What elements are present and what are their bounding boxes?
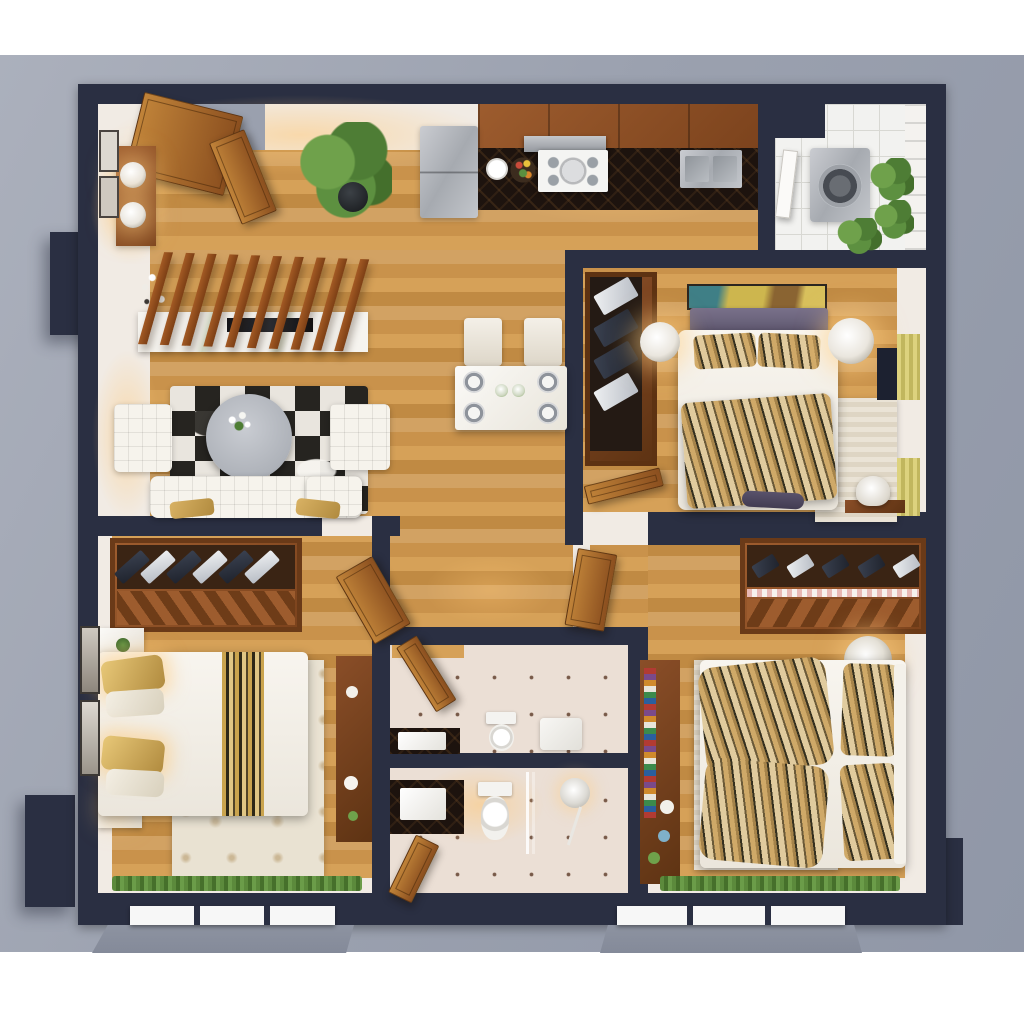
left-wall-frame [80,626,100,694]
shelf-item [648,852,660,864]
refrigerator [420,126,478,218]
left-bedroom-window-plants [112,876,362,891]
wall-master-bottom-left-stub [565,512,583,545]
dining-chair [524,318,562,366]
master-pillow-left [693,332,757,369]
laundry-plant [836,218,882,254]
sink-basin [713,156,737,182]
master-bedside-lamp-right [828,318,874,364]
entry-lamp-2 [120,202,146,228]
wardrobe-hanger-rail [117,545,295,589]
centerpiece [495,384,508,397]
entry-console-table [116,146,156,246]
washing-machine-door [818,164,862,208]
master-headboard [690,308,828,332]
place-setting [537,402,559,424]
centerpiece [512,384,525,397]
master-wall-art [687,284,827,310]
bathroom-top-toilet-tank [486,712,516,724]
nightstand-plant [116,638,130,652]
bottom-left-column [25,795,75,907]
left-bed-pillow [105,688,165,718]
master-curtain-upper [897,334,920,400]
entry-lamp-1 [120,162,146,188]
sink-basin [685,156,709,182]
bookshelf-books [644,668,656,818]
master-pillow-right [757,332,821,369]
entry-wall-frame-1 [99,130,119,172]
place-setting [537,371,559,393]
bottom-right-sliding-door-frame [617,906,845,925]
bathroom-top-toilet-bowl [489,724,514,751]
right-bedroom-window-plants [660,876,900,891]
wall-laundry-left [758,84,775,268]
right-bed-print-blanket [698,757,830,869]
double-sink [680,150,742,188]
cooktop [538,150,608,192]
bathroom-bottom-toilet-bowl [481,796,509,840]
palm-pot [338,182,368,212]
floor-plan-scene: 3D top-down apartment floor plan render … [0,0,1024,1024]
dresser-item [348,811,358,821]
rain-shower-head [560,778,590,808]
wardrobe-hanger-rail [747,545,919,587]
dresser-item [346,686,358,698]
place-setting [463,402,485,424]
slatted-wood-divider [138,252,386,352]
shelf-item [658,830,670,842]
vanity-sink [398,732,446,750]
table-flowers [222,408,256,438]
left-wall-frame [80,700,100,776]
wardrobe-lower-slats [117,591,295,625]
fruit-bowl [510,154,536,186]
bathroom-top-vanity [390,728,460,754]
wall-between-bathrooms [372,753,648,768]
right-bed-pillow [840,763,901,862]
ottoman-left [114,404,172,472]
left-bed-pillow [105,769,164,798]
hanging-garment [822,553,851,578]
shelf-item [660,800,674,814]
wardrobe-interior [590,277,642,451]
bathroom-top-shower-tray [540,718,582,750]
bottom-left-sliding-door-frame [130,906,335,925]
hanging-garment [593,276,639,315]
hanging-garment [593,372,639,411]
wall-living-leftbedroom [78,516,322,536]
bathroom-bottom-vanity [390,780,464,834]
hanging-garment [857,553,886,578]
master-desk-chair [856,476,890,506]
master-foot-roll [742,490,805,509]
right-bed-white-edge [894,664,906,864]
master-bedside-lamp-left [640,322,680,362]
wardrobe-striped-trim [747,589,919,597]
corridor-floor [390,516,573,627]
ottoman-right [330,404,390,470]
upper-cabinets [478,104,758,148]
left-bedroom-dresser [336,656,372,842]
entry-wall-frame-2 [99,176,119,218]
hanging-garment [751,553,780,578]
right-bed-pillow [840,663,899,757]
bottom-right-balcony-slab [600,925,862,953]
right-bedroom-bookshelf [640,660,680,884]
hanging-garment [892,553,921,578]
glass-screen [526,772,529,854]
hanging-garment [786,553,815,578]
master-wardrobe [585,272,657,466]
dresser-item [344,776,358,790]
wardrobe-lower-slats [747,599,919,627]
utility-shaft [775,104,825,138]
hanging-garment [593,340,639,379]
serving-plate [486,158,508,180]
hanging-garment [593,308,639,347]
bathroom-bottom-toilet-tank [478,782,512,796]
laundry-plant [870,158,914,202]
dining-chair [464,318,502,366]
right-bedroom-wardrobe [740,538,926,634]
scene-title: 3D top-down apartment floor plan render … [0,0,1,1]
left-bedroom-wardrobe [110,538,302,632]
bottom-left-balcony-slab [92,925,354,953]
left-bed-runner [222,652,264,816]
place-setting [463,371,485,393]
wall-master-left [565,250,583,545]
vanity-sink [400,788,446,820]
